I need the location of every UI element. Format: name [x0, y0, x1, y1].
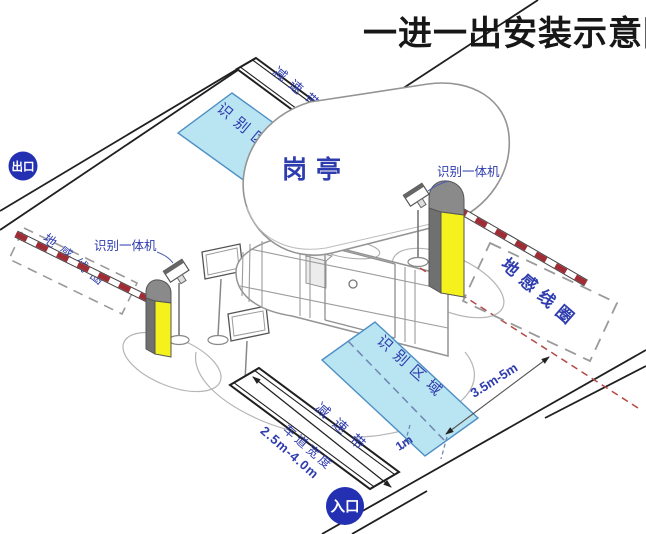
booth-label: 岗亭	[282, 155, 350, 184]
camera-label-left-text: 识别一体机	[94, 239, 157, 253]
exit-badge: 出口	[9, 152, 38, 181]
diagram-canvas: 减速带 识别区域 地感线圈	[0, 0, 646, 534]
page-title: 一进一出安装示意图	[363, 15, 646, 53]
exit-badge-text: 出口	[12, 160, 35, 174]
entry-badge-text: 入口	[331, 499, 360, 516]
barrier-gate-right	[429, 181, 464, 297]
installation-diagram: 减速带 识别区域 地感线圈	[0, 0, 646, 534]
barrier-gate-left	[146, 280, 171, 357]
entry-badge: 入口	[326, 487, 364, 525]
door-handle-icon	[349, 280, 357, 288]
camera-label-right-text: 识别一体机	[437, 165, 500, 179]
